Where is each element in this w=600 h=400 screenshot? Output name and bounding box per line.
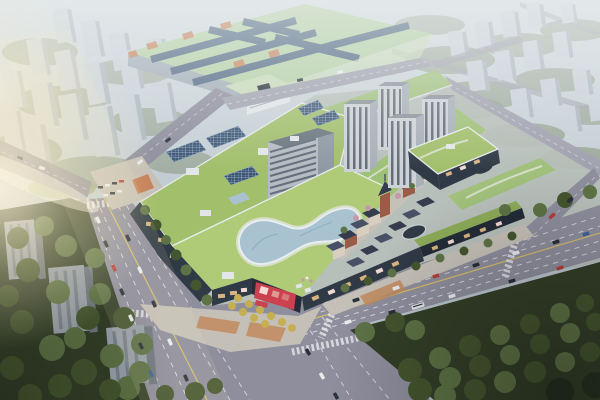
aerial-render-canvas	[0, 0, 600, 400]
yellow-tree	[288, 324, 296, 332]
balloon-decor	[301, 278, 304, 281]
yellow-tree	[234, 294, 242, 302]
yellow-tree	[278, 318, 286, 326]
tree	[409, 183, 415, 189]
yellow-tree	[256, 306, 264, 314]
yellow-tree	[245, 300, 253, 308]
tree	[171, 250, 182, 261]
tree	[161, 235, 171, 245]
storefront-window	[241, 288, 247, 292]
balloon-decor	[309, 279, 312, 282]
blossom-tree	[353, 215, 359, 221]
tree	[191, 280, 202, 291]
aerial-render	[0, 0, 600, 400]
yellow-tree	[261, 320, 269, 328]
roof-unit	[200, 210, 211, 216]
tower-body	[380, 192, 390, 218]
tree	[202, 295, 213, 306]
roof-unit	[222, 272, 234, 279]
tree	[341, 227, 348, 234]
tree	[181, 265, 192, 276]
yellow-tree	[250, 314, 258, 322]
blossom-tree	[395, 193, 401, 199]
blossom-tree	[365, 205, 371, 211]
yellow-tree	[267, 312, 275, 320]
storefront-window	[218, 294, 225, 298]
tree	[341, 284, 350, 293]
yellow-tree	[239, 308, 247, 316]
balloon-decor	[306, 277, 309, 280]
yellow-tree	[228, 302, 236, 310]
